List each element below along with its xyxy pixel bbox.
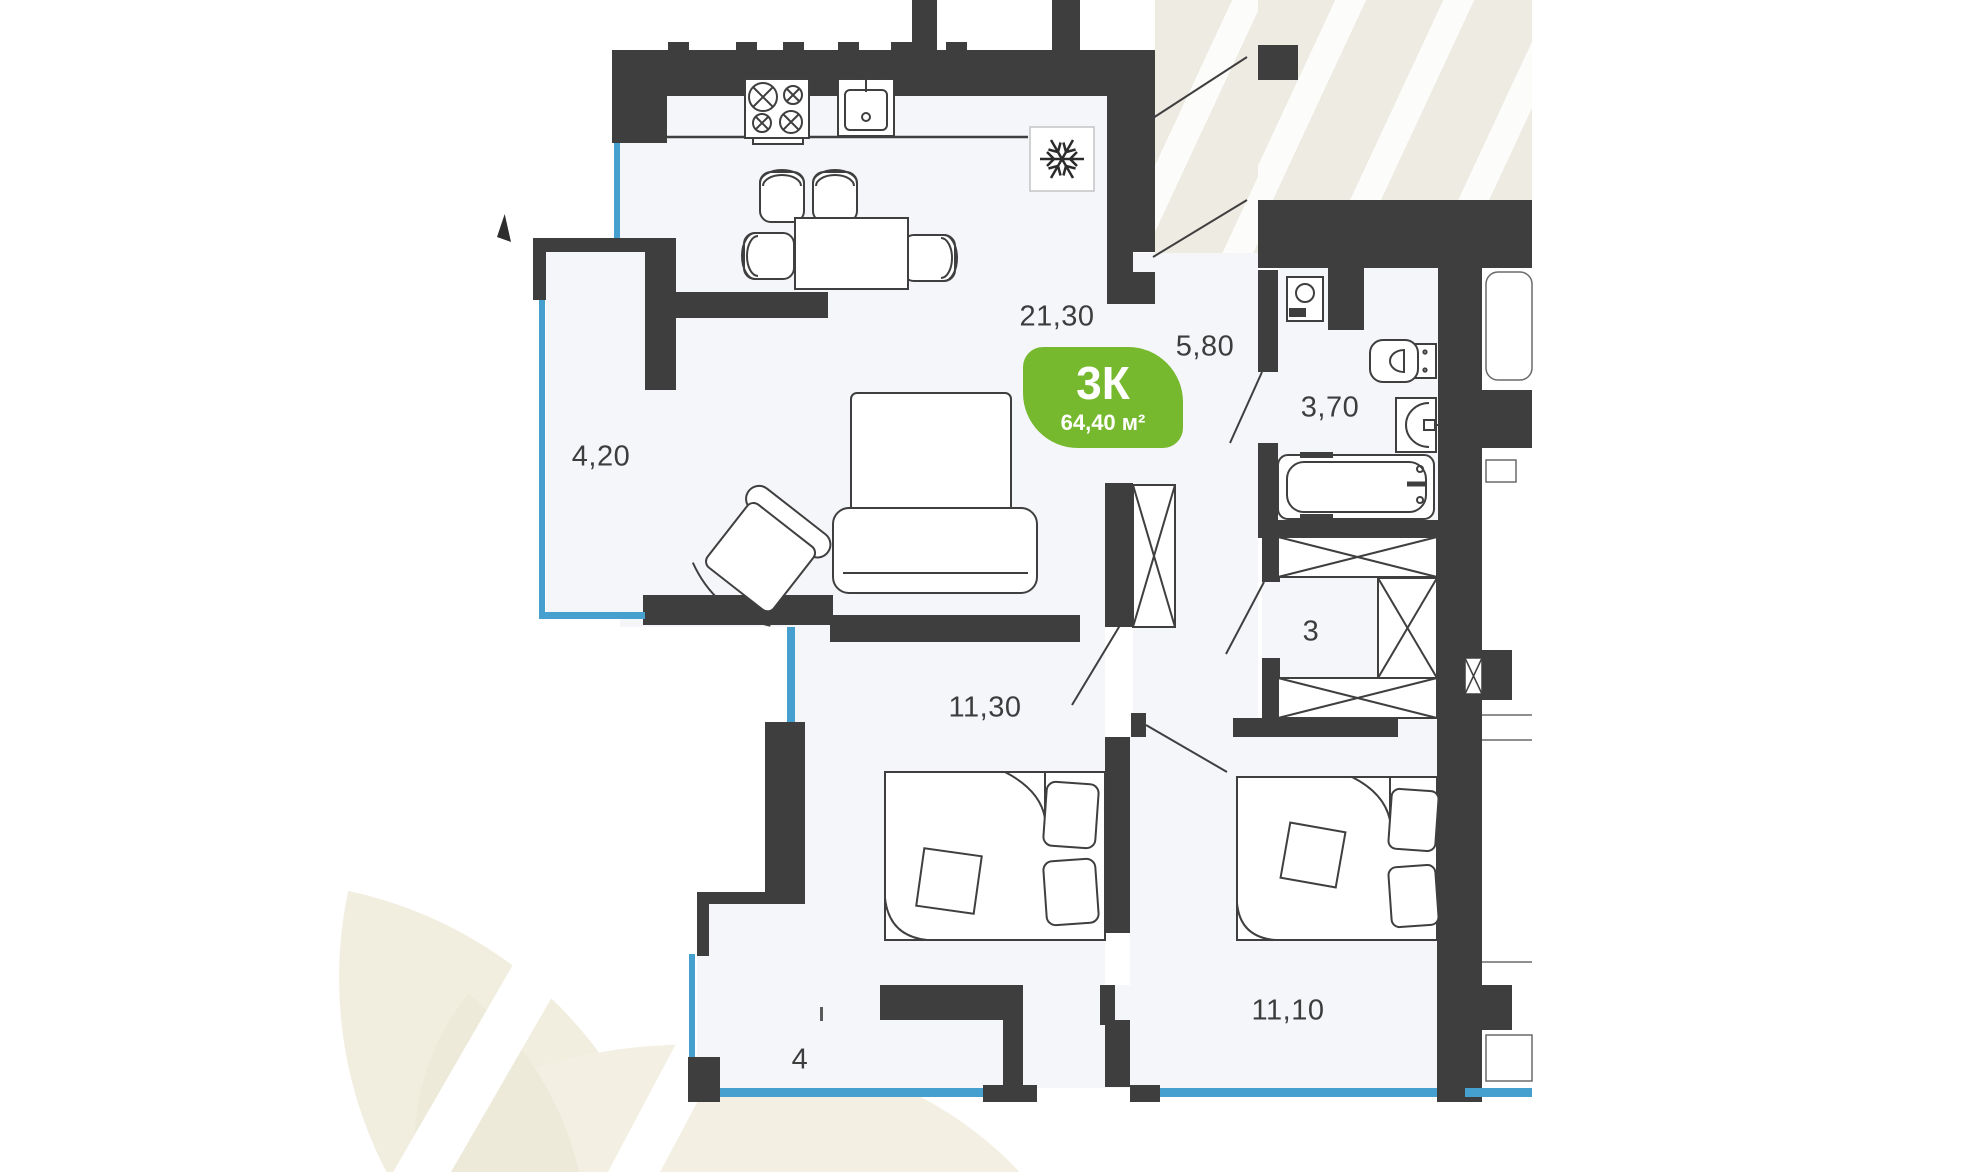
storage-wardrobe-icon bbox=[1278, 537, 1437, 577]
badge-total-area: 64,40 м² bbox=[1061, 410, 1146, 436]
dining-chair-icon bbox=[813, 170, 857, 222]
dining-chair-icon bbox=[760, 170, 804, 222]
washing-machine-icon bbox=[1287, 277, 1323, 321]
duct-icon bbox=[1465, 658, 1482, 694]
wardrobe-icon bbox=[1133, 485, 1175, 627]
room-label-balcony-upper: 4,20 bbox=[572, 441, 630, 474]
stove-icon bbox=[745, 79, 809, 144]
neighbor-fragments bbox=[1482, 272, 1532, 1081]
dining-chair-icon bbox=[742, 233, 794, 279]
kitchen-sink-icon bbox=[838, 72, 894, 136]
bed-icon bbox=[885, 772, 1105, 940]
badge-rooms-count: 3К bbox=[1076, 360, 1130, 406]
room-label-storage: 3 bbox=[1303, 616, 1320, 649]
bathtub-icon bbox=[1278, 452, 1434, 520]
fridge-snowflake-icon bbox=[1030, 127, 1094, 191]
room-label-bathroom: 3,70 bbox=[1301, 392, 1359, 425]
armchair-icon bbox=[684, 481, 835, 635]
room-label-balcony-lower: 4 bbox=[792, 1044, 809, 1077]
dimension-tick bbox=[820, 1007, 823, 1021]
sofa-icon bbox=[833, 393, 1037, 593]
storage-wardrobe-icon bbox=[1278, 678, 1437, 718]
bed-icon bbox=[1237, 777, 1439, 940]
room-label-hallway: 5,80 bbox=[1176, 331, 1234, 364]
storage-wardrobe-icon bbox=[1378, 578, 1437, 678]
toilet-icon bbox=[1370, 340, 1436, 382]
dining-chair-icon bbox=[903, 235, 957, 281]
room-label-bedroom-middle: 11,30 bbox=[949, 692, 1022, 725]
room-label-kitchen-living: 21,30 bbox=[1019, 301, 1094, 334]
furniture-layer bbox=[0, 0, 1980, 1172]
bathroom-sink-icon bbox=[1396, 398, 1442, 452]
dining-table-icon bbox=[795, 218, 908, 289]
apartment-badge: 3К 64,40 м² bbox=[1023, 347, 1183, 448]
room-label-bedroom-lower: 11,10 bbox=[1252, 995, 1325, 1028]
floor-plan: 21,30 5,80 3,70 4,20 11,30 3 11,10 4 3К … bbox=[0, 0, 1980, 1172]
